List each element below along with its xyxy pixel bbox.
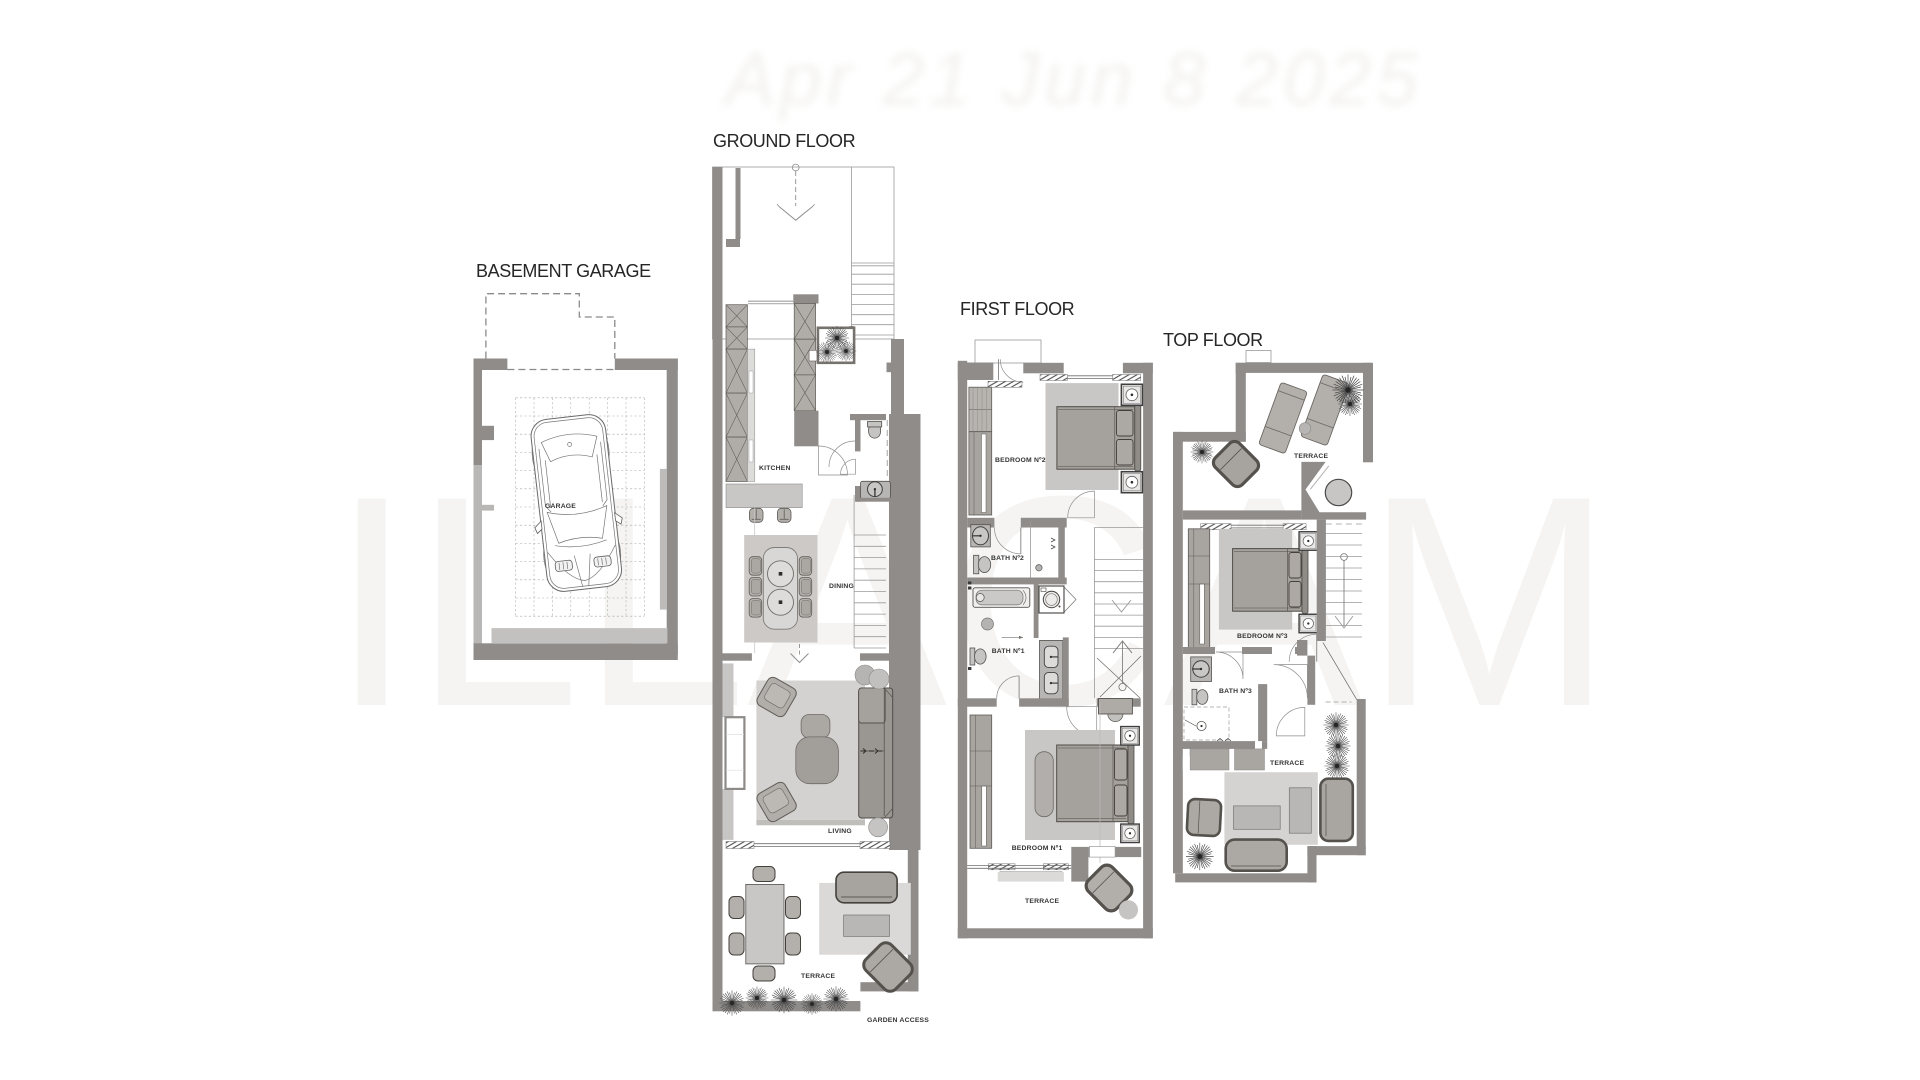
svg-text:BEDROOM Nº3: BEDROOM Nº3 bbox=[1237, 633, 1288, 640]
svg-text:DINING: DINING bbox=[829, 583, 854, 590]
svg-text:GARAGE: GARAGE bbox=[545, 503, 576, 510]
svg-text:GARDEN ACCESS: GARDEN ACCESS bbox=[867, 1017, 929, 1024]
svg-text:TERRACE: TERRACE bbox=[801, 973, 836, 980]
svg-text:BASEMENT GARAGE: BASEMENT GARAGE bbox=[476, 261, 651, 281]
svg-text:BATH Nº3: BATH Nº3 bbox=[1219, 688, 1252, 695]
svg-text:Apr 21 Jun 8 2025: Apr 21 Jun 8 2025 bbox=[721, 37, 1423, 121]
svg-text:TERRACE: TERRACE bbox=[1294, 453, 1329, 460]
svg-text:BEDROOM Nº2: BEDROOM Nº2 bbox=[995, 457, 1046, 464]
svg-text:KITCHEN: KITCHEN bbox=[759, 465, 791, 472]
svg-text:TERRACE: TERRACE bbox=[1270, 760, 1305, 767]
svg-text:TOP FLOOR: TOP FLOOR bbox=[1163, 330, 1263, 350]
svg-text:GROUND FLOOR: GROUND FLOOR bbox=[713, 131, 856, 151]
svg-text:BATH Nº1: BATH Nº1 bbox=[992, 648, 1025, 655]
svg-text:BATH Nº2: BATH Nº2 bbox=[991, 555, 1024, 562]
svg-text:TERRACE: TERRACE bbox=[1025, 898, 1060, 905]
svg-text:LIVING: LIVING bbox=[828, 828, 852, 835]
svg-text:BEDROOM Nº1: BEDROOM Nº1 bbox=[1012, 845, 1063, 852]
svg-text:FIRST FLOOR: FIRST FLOOR bbox=[960, 299, 1075, 319]
